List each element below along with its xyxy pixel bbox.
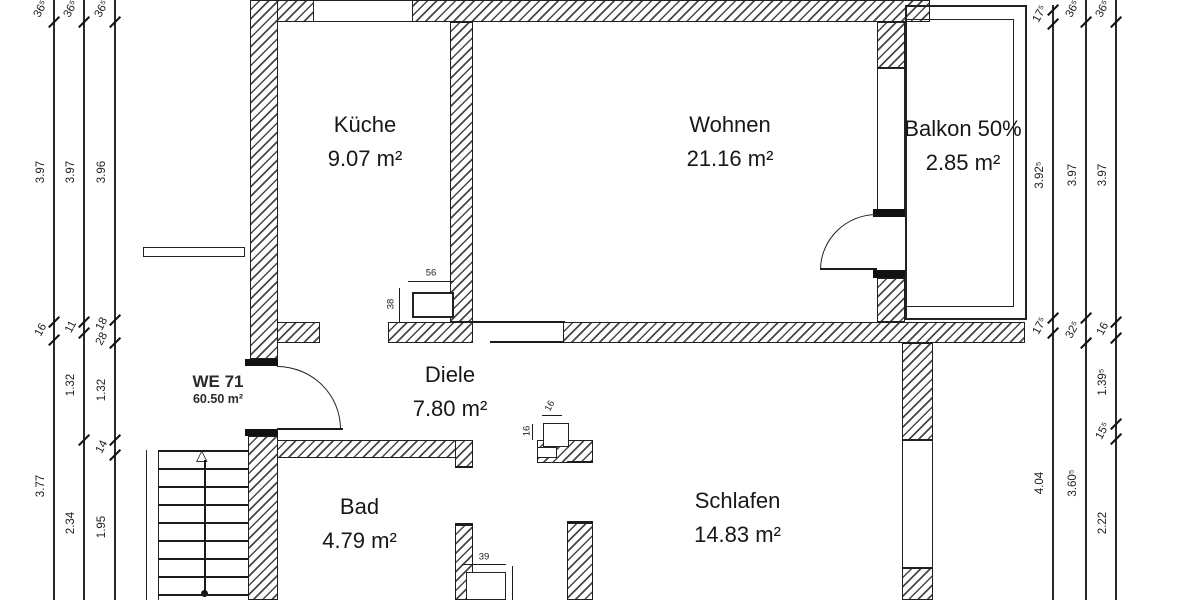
stair-tread xyxy=(158,486,248,488)
wall-schlafen-right-top xyxy=(902,343,933,440)
bad-step-dim-line xyxy=(462,564,506,565)
wall-kueche-diele-right xyxy=(388,322,473,343)
room-label-diele: Diele 7.80 m² xyxy=(370,358,530,426)
dimension-label: 3.96 xyxy=(96,161,108,183)
dimension-label: 1.95 xyxy=(96,516,108,538)
dimension-label: 3.97 xyxy=(65,161,77,183)
chimney-dim-line-v xyxy=(399,288,400,322)
dimension-label: 16 xyxy=(33,322,50,339)
dimension-label: 17⁵ xyxy=(1031,3,1050,24)
dimension-label: 15⁵ xyxy=(1094,420,1113,441)
balkon-door-jamb-bottom xyxy=(873,270,907,278)
stair-tread xyxy=(158,522,248,524)
room-label-kueche: Küche 9.07 m² xyxy=(285,108,445,176)
dimension-label: 1.32 xyxy=(65,374,77,396)
wall-wohnen-right-top xyxy=(877,22,905,68)
unit-number: WE 71 xyxy=(172,372,264,392)
stair-tread xyxy=(158,594,248,596)
niche-step xyxy=(537,447,557,458)
dimension-label: 36⁵ xyxy=(1094,0,1113,20)
wall-left-upper xyxy=(250,0,278,359)
dimension-label: 16 xyxy=(1095,321,1112,338)
bad-step-detail xyxy=(466,572,506,600)
room-name-bad: Bad xyxy=(282,490,437,524)
chimney-dim-width: 56 xyxy=(426,268,437,279)
passage-threshold-top xyxy=(473,321,565,323)
stair-tread xyxy=(158,576,248,578)
dimension-label: 3.97 xyxy=(35,161,47,183)
window-kueche-top xyxy=(313,0,413,22)
room-name-balkon: Balkon 50% xyxy=(873,112,1053,146)
niche-detail xyxy=(543,423,569,447)
passage-threshold-bottom xyxy=(490,341,563,343)
room-area-bad: 4.79 m² xyxy=(282,524,437,558)
dimension-label: 17⁵ xyxy=(1031,315,1050,336)
stair-center-line xyxy=(204,460,206,594)
room-area-balkon: 2.85 m² xyxy=(873,146,1053,180)
room-label-bad: Bad 4.79 m² xyxy=(282,490,437,558)
dimension-label: 11 xyxy=(63,319,79,335)
dimension-label: 18 xyxy=(94,316,111,333)
wall-left-lower xyxy=(248,436,278,600)
dimension-label: 3.92⁵ xyxy=(1034,161,1046,188)
dimension-label: 36⁵ xyxy=(1064,0,1083,20)
unit-area: 60.50 m² xyxy=(172,392,264,407)
entry-door-jamb-top xyxy=(245,359,278,366)
bad-step-dim-line-v xyxy=(512,566,513,600)
niche-dim-b: 16 xyxy=(522,426,533,437)
stair-tread xyxy=(158,468,248,470)
wall-kueche-wohnen xyxy=(450,22,473,322)
room-area-wohnen: 21.16 m² xyxy=(630,142,830,176)
balkon-door-arc xyxy=(820,214,877,270)
chimney-dim-line-h xyxy=(408,281,454,282)
room-label-schlafen: Schlafen 14.83 m² xyxy=(650,484,825,552)
stair-tread xyxy=(158,504,248,506)
stair-tread xyxy=(158,450,248,452)
dimension-label: 3.97 xyxy=(1097,164,1109,186)
schlafen-door-jamb-bottom xyxy=(567,521,593,523)
dimension-line-left xyxy=(53,0,55,600)
wall-schlafen-right-bottom xyxy=(902,568,933,600)
entry-door-leaf xyxy=(277,428,343,430)
room-name-kueche: Küche xyxy=(285,108,445,142)
dimension-label: 3.77 xyxy=(35,475,47,497)
dimension-label: 36⁵ xyxy=(32,0,51,20)
niche-dim-line-h xyxy=(542,415,562,416)
floor-plan: 56 38 16 16 39 △ Küche 9.07 m² Wohnen 21… xyxy=(0,0,1200,600)
dimension-line-right xyxy=(1115,0,1117,600)
stair-tread xyxy=(158,558,248,560)
corridor-wall-stub xyxy=(143,247,245,257)
schlafen-door-jamb-top xyxy=(567,461,593,463)
dimension-label: 32⁵ xyxy=(1064,319,1083,340)
dimension-label: 36⁵ xyxy=(62,0,81,20)
dimension-label: 14 xyxy=(94,439,111,456)
balkon-door-leaf xyxy=(820,268,877,270)
entry-door-arc xyxy=(277,366,341,429)
chimney-dim-height: 38 xyxy=(386,299,397,310)
room-name-schlafen: Schlafen xyxy=(650,484,825,518)
bad-door-jamb-top xyxy=(455,466,473,468)
wall-diele-bad xyxy=(277,440,457,458)
room-area-schlafen: 14.83 m² xyxy=(650,518,825,552)
balkon-door-jamb-top xyxy=(873,209,907,217)
dimension-label: 3.97 xyxy=(1067,164,1079,186)
dimension-label: 4.04 xyxy=(1034,472,1046,494)
dimension-label: 2.22 xyxy=(1097,512,1109,534)
dimension-label: 3.60⁵ xyxy=(1067,469,1079,496)
room-area-diele: 7.80 m² xyxy=(370,392,530,426)
dimension-label: 2.34 xyxy=(65,512,77,534)
room-area-kueche: 9.07 m² xyxy=(285,142,445,176)
dimension-line-left xyxy=(83,0,85,600)
dimension-line-left xyxy=(114,0,116,600)
niche-dim-a: 16 xyxy=(543,399,558,414)
dimension-label: 1.39⁵ xyxy=(1097,368,1109,395)
dimension-line-right xyxy=(1052,5,1054,600)
dimension-line-right xyxy=(1085,0,1087,600)
wall-wohnen-right-bottom xyxy=(877,278,905,322)
chimney-detail xyxy=(412,292,454,318)
wall-wohnen-schlafen xyxy=(563,322,1025,343)
wall-kueche-diele-left xyxy=(277,322,320,343)
room-name-wohnen: Wohnen xyxy=(630,108,830,142)
room-label-wohnen: Wohnen 21.16 m² xyxy=(630,108,830,176)
bad-door-jamb-bottom xyxy=(455,523,473,525)
bad-step-dim: 39 xyxy=(479,552,490,563)
wall-bad-right-top xyxy=(455,440,473,468)
window-schlafen-right xyxy=(902,440,933,568)
dimension-label: 36⁵ xyxy=(93,0,112,20)
unit-label: WE 71 60.50 m² xyxy=(172,372,264,407)
entry-door-jamb-bottom xyxy=(245,429,278,436)
room-name-diele: Diele xyxy=(370,358,530,392)
stair-tread xyxy=(158,540,248,542)
wall-schlafen-left-bottom xyxy=(567,523,593,600)
dimension-label: 28 xyxy=(94,331,111,348)
dimension-label: 1.32 xyxy=(96,379,108,401)
room-label-balkon: Balkon 50% 2.85 m² xyxy=(873,112,1053,180)
